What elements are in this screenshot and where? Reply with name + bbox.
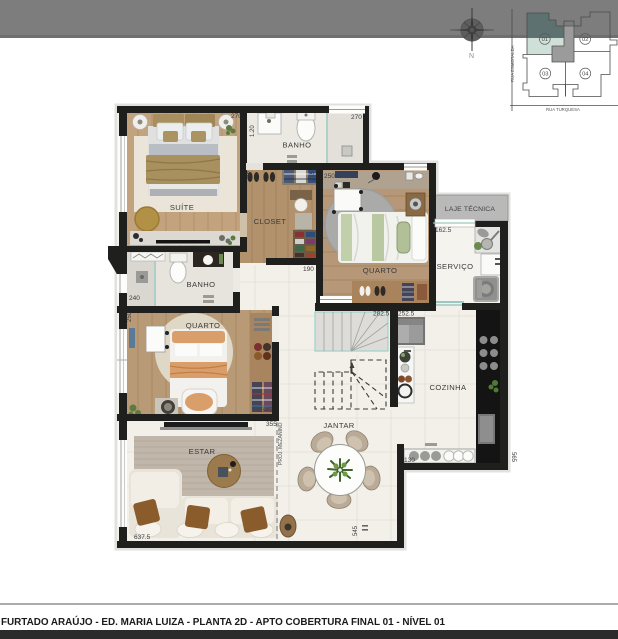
- svg-text:QUARTO: QUARTO: [363, 266, 398, 275]
- svg-text:04: 04: [582, 72, 589, 78]
- svg-text:215: 215: [310, 170, 316, 181]
- svg-text:QUARTO: QUARTO: [186, 321, 221, 330]
- svg-text:JANTAR: JANTAR: [323, 421, 354, 430]
- svg-text:162.5: 162.5: [435, 227, 452, 234]
- svg-text:282.5: 282.5: [373, 311, 390, 318]
- svg-text:SERVIÇO: SERVIÇO: [437, 262, 474, 271]
- svg-text:BANHO: BANHO: [282, 141, 311, 150]
- svg-text:250: 250: [324, 173, 335, 180]
- svg-text:130: 130: [404, 457, 415, 464]
- svg-text:270: 270: [351, 114, 362, 121]
- svg-text:FURTADO ARAÚJO - ED. MARIA LUI: FURTADO ARAÚJO - ED. MARIA LUIZA - PLANT…: [1, 616, 446, 628]
- svg-text:CLOSET: CLOSET: [254, 217, 287, 226]
- svg-text:565: 565: [510, 452, 516, 463]
- svg-text:RUA ESMERALDA: RUA ESMERALDA: [510, 45, 515, 82]
- svg-text:252.5: 252.5: [398, 311, 415, 318]
- svg-text:1.20: 1.20: [250, 125, 256, 137]
- svg-text:SUÍTE: SUÍTE: [170, 203, 194, 212]
- svg-text:N: N: [469, 53, 474, 60]
- svg-text:COZINHA: COZINHA: [430, 383, 468, 392]
- svg-text:02: 02: [582, 37, 588, 43]
- svg-text:637.5: 637.5: [134, 534, 151, 541]
- svg-text:LAJE TÉCNICA: LAJE TÉCNICA: [445, 204, 496, 213]
- svg-text:03: 03: [542, 72, 548, 78]
- svg-text:345: 345: [261, 407, 272, 414]
- svg-text:190: 190: [303, 266, 314, 273]
- svg-text:ESTAR: ESTAR: [189, 447, 216, 456]
- svg-text:01: 01: [542, 37, 548, 43]
- svg-text:RUA TURQUESA: RUA TURQUESA: [546, 107, 580, 112]
- svg-text:240: 240: [129, 295, 140, 302]
- svg-text:545: 545: [353, 525, 359, 536]
- svg-text:355: 355: [266, 421, 277, 428]
- svg-text:PROJ. MEZANINO: PROJ. MEZANINO: [278, 422, 284, 465]
- svg-text:BANHO: BANHO: [186, 280, 215, 289]
